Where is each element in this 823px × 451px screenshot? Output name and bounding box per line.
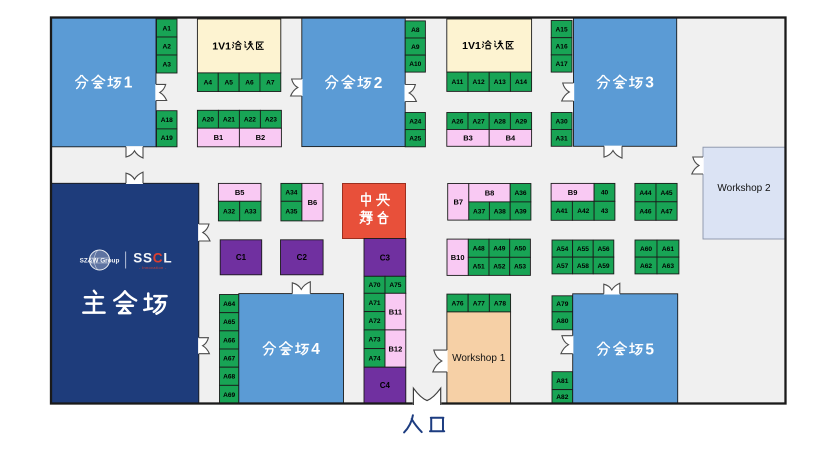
svg-text:A4: A4 [204,80,213,87]
svg-text:A11: A11 [452,79,464,86]
svg-text:A45: A45 [660,190,672,197]
svg-text:B12: B12 [389,344,403,353]
svg-text:C4: C4 [380,381,391,390]
svg-text:A12: A12 [473,79,485,86]
svg-text:Workshop 2: Workshop 2 [717,183,771,194]
svg-text:A79: A79 [556,301,568,308]
svg-text:C1: C1 [236,253,247,262]
svg-text:A77: A77 [473,300,485,307]
svg-text:A66: A66 [223,337,235,344]
svg-text:B1: B1 [214,133,224,142]
svg-text:A13: A13 [494,79,506,86]
svg-text:A69: A69 [223,392,235,399]
svg-text:A7: A7 [266,80,275,87]
svg-text:A27: A27 [473,118,485,125]
svg-text:A31: A31 [556,135,568,142]
svg-text:A10: A10 [409,61,421,68]
svg-text:A64: A64 [223,301,235,308]
svg-text:A59: A59 [597,263,609,270]
svg-text:A21: A21 [223,117,235,124]
svg-text:A29: A29 [515,118,527,125]
svg-text:A38: A38 [494,208,506,215]
svg-text:B6: B6 [308,198,318,207]
svg-text:A60: A60 [640,246,652,253]
svg-text:- Innovation -: - Innovation - [139,266,167,270]
svg-text:A20: A20 [202,117,214,124]
svg-text:3: 3 [645,75,654,92]
svg-text:A52: A52 [493,264,505,271]
svg-text:A41: A41 [556,208,568,215]
svg-text:A42: A42 [577,208,589,215]
svg-text:40: 40 [601,190,609,197]
svg-text:A3: A3 [163,61,172,68]
svg-text:B3: B3 [463,134,473,143]
svg-text:A55: A55 [577,246,589,253]
svg-text:A19: A19 [161,135,173,142]
svg-text:A57: A57 [556,263,568,270]
svg-text:A8: A8 [411,27,420,34]
svg-text:A37: A37 [473,208,485,215]
svg-text:Workshop 1: Workshop 1 [452,353,506,364]
svg-text:A74: A74 [368,355,380,362]
svg-text:A14: A14 [515,79,527,86]
svg-text:SZ&W Group: SZ&W Group [80,257,120,264]
svg-text:A9: A9 [411,44,420,51]
svg-text:C2: C2 [297,253,308,262]
svg-text:A50: A50 [514,246,526,253]
svg-text:A48: A48 [473,246,485,253]
svg-text:4: 4 [311,341,320,358]
svg-text:A82: A82 [556,394,568,401]
svg-text:A15: A15 [556,26,568,33]
svg-text:B4: B4 [506,134,516,143]
svg-text:A63: A63 [662,263,674,270]
svg-text:A54: A54 [556,246,568,253]
svg-text:A46: A46 [639,208,651,215]
svg-text:A2: A2 [163,43,172,50]
svg-text:A61: A61 [662,246,674,253]
svg-text:A53: A53 [514,264,526,271]
svg-text:1V1: 1V1 [462,40,481,52]
svg-text:A58: A58 [577,263,589,270]
svg-text:A39: A39 [514,208,526,215]
svg-text:A35: A35 [285,208,297,215]
svg-text:C3: C3 [380,253,391,262]
svg-text:A47: A47 [660,208,672,215]
svg-text:A68: A68 [223,374,235,381]
svg-text:A67: A67 [223,355,235,362]
svg-text:A62: A62 [640,263,652,270]
svg-text:A73: A73 [368,337,380,344]
svg-text:A32: A32 [223,208,235,215]
svg-text:5: 5 [645,341,654,358]
svg-text:B5: B5 [235,188,245,197]
svg-text:A22: A22 [244,117,256,124]
svg-text:A51: A51 [473,264,485,271]
svg-text:1V1: 1V1 [212,41,231,53]
svg-text:A1: A1 [163,25,172,32]
svg-text:A56: A56 [597,246,609,253]
svg-text:B8: B8 [485,188,495,197]
svg-text:B9: B9 [568,188,578,197]
svg-text:A5: A5 [224,80,233,87]
svg-text:A34: A34 [285,190,297,197]
svg-text:2: 2 [374,75,383,92]
svg-text:A28: A28 [494,118,506,125]
svg-text:A44: A44 [639,190,651,197]
svg-text:43: 43 [601,208,609,215]
svg-text:1: 1 [124,75,133,92]
svg-text:A18: A18 [161,117,173,124]
svg-text:B10: B10 [451,253,465,262]
svg-text:A23: A23 [265,117,277,124]
svg-text:A71: A71 [368,300,380,307]
svg-text:A65: A65 [223,319,235,326]
svg-text:A49: A49 [493,246,505,253]
svg-text:B11: B11 [389,307,402,316]
svg-text:A80: A80 [556,318,568,325]
svg-text:A33: A33 [244,208,256,215]
svg-text:A17: A17 [556,61,568,68]
svg-text:A6: A6 [245,80,254,87]
svg-text:A76: A76 [451,300,463,307]
svg-text:A75: A75 [389,282,401,289]
svg-text:A36: A36 [514,190,526,197]
svg-text:A72: A72 [368,318,380,325]
svg-text:A24: A24 [409,118,421,125]
svg-text:A30: A30 [556,118,568,125]
svg-text:A81: A81 [556,378,568,385]
svg-text:B2: B2 [256,133,266,142]
svg-text:A16: A16 [556,44,568,51]
svg-text:SSCL: SSCL [133,251,172,266]
svg-text:A70: A70 [368,282,380,289]
svg-text:A26: A26 [451,118,463,125]
svg-text:B7: B7 [453,198,463,207]
svg-text:A78: A78 [494,300,506,307]
svg-text:A25: A25 [409,136,421,143]
